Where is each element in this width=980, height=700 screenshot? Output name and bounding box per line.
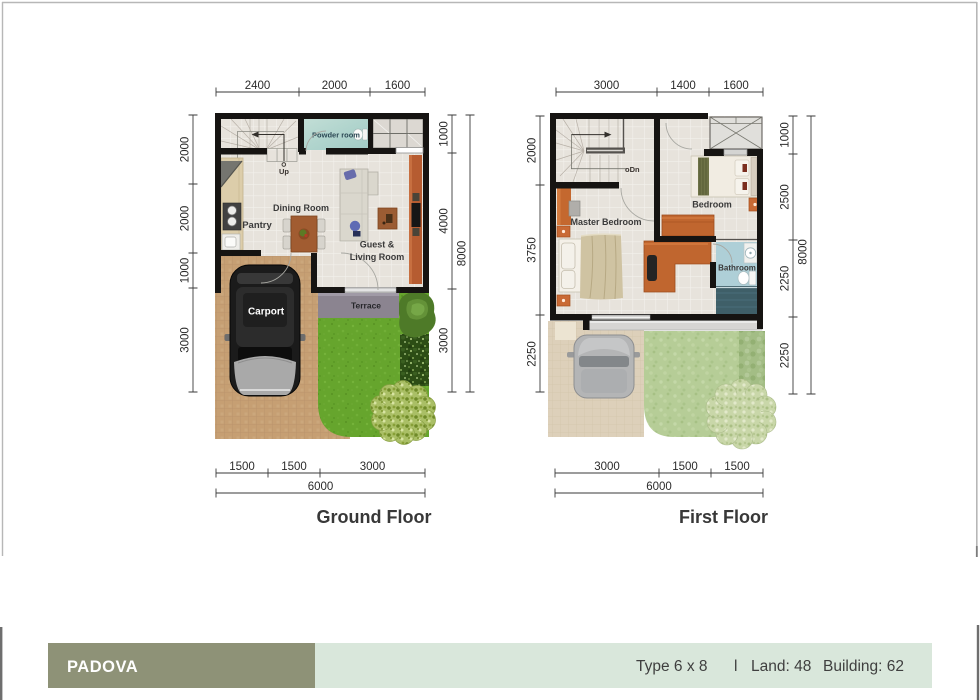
svg-text:Living Room: Living Room	[350, 252, 405, 262]
svg-text:1600: 1600	[723, 80, 749, 92]
svg-text:2000: 2000	[180, 137, 192, 163]
svg-text:Carport: Carport	[248, 307, 285, 318]
svg-text:1600: 1600	[385, 80, 411, 92]
svg-text:l: l	[734, 658, 737, 675]
svg-text:1500: 1500	[281, 461, 307, 473]
svg-text:3750: 3750	[527, 237, 539, 263]
svg-text:1000: 1000	[780, 122, 792, 148]
svg-text:3000: 3000	[360, 461, 386, 473]
svg-text:Terrace: Terrace	[351, 301, 381, 311]
svg-text:3000: 3000	[439, 328, 451, 354]
svg-text:6000: 6000	[308, 481, 334, 493]
svg-text:1400: 1400	[670, 80, 696, 92]
svg-text:1000: 1000	[439, 121, 451, 147]
svg-text:2400: 2400	[245, 80, 271, 92]
svg-text:Bedroom: Bedroom	[692, 200, 732, 210]
svg-text:Bathroom: Bathroom	[718, 264, 756, 273]
svg-text:2500: 2500	[780, 184, 792, 210]
svg-text:Master Bedroom: Master Bedroom	[570, 217, 641, 227]
svg-text:2250: 2250	[527, 341, 539, 367]
svg-text:8000: 8000	[798, 239, 810, 265]
svg-text:3000: 3000	[180, 327, 192, 353]
svg-text:Pantry: Pantry	[242, 220, 272, 231]
svg-text:1000: 1000	[180, 258, 192, 284]
svg-text:2000: 2000	[180, 206, 192, 232]
svg-text:Land: 48: Land: 48	[751, 658, 811, 675]
svg-text:PADOVA: PADOVA	[67, 658, 138, 676]
svg-text:Guest &: Guest &	[360, 240, 395, 250]
svg-text:2000: 2000	[322, 80, 348, 92]
svg-text:Type 6 x 8: Type 6 x 8	[636, 658, 708, 675]
svg-text:3000: 3000	[594, 80, 620, 92]
svg-text:1500: 1500	[229, 461, 255, 473]
svg-text:1500: 1500	[672, 461, 698, 473]
svg-text:First Floor: First Floor	[679, 507, 768, 527]
svg-text:6000: 6000	[646, 481, 672, 493]
svg-text:oDn: oDn	[625, 165, 640, 174]
svg-text:4000: 4000	[439, 208, 451, 234]
svg-text:3000: 3000	[594, 461, 620, 473]
svg-text:8000: 8000	[457, 241, 469, 267]
svg-text:2250: 2250	[780, 343, 792, 369]
svg-text:Dining Room: Dining Room	[273, 203, 329, 213]
svg-text:Building: 62: Building: 62	[823, 658, 904, 675]
svg-text:Ground Floor: Ground Floor	[317, 507, 432, 527]
svg-text:Up: Up	[279, 167, 289, 176]
svg-text:2250: 2250	[780, 266, 792, 292]
svg-text:1500: 1500	[724, 461, 750, 473]
svg-text:2000: 2000	[527, 138, 539, 164]
